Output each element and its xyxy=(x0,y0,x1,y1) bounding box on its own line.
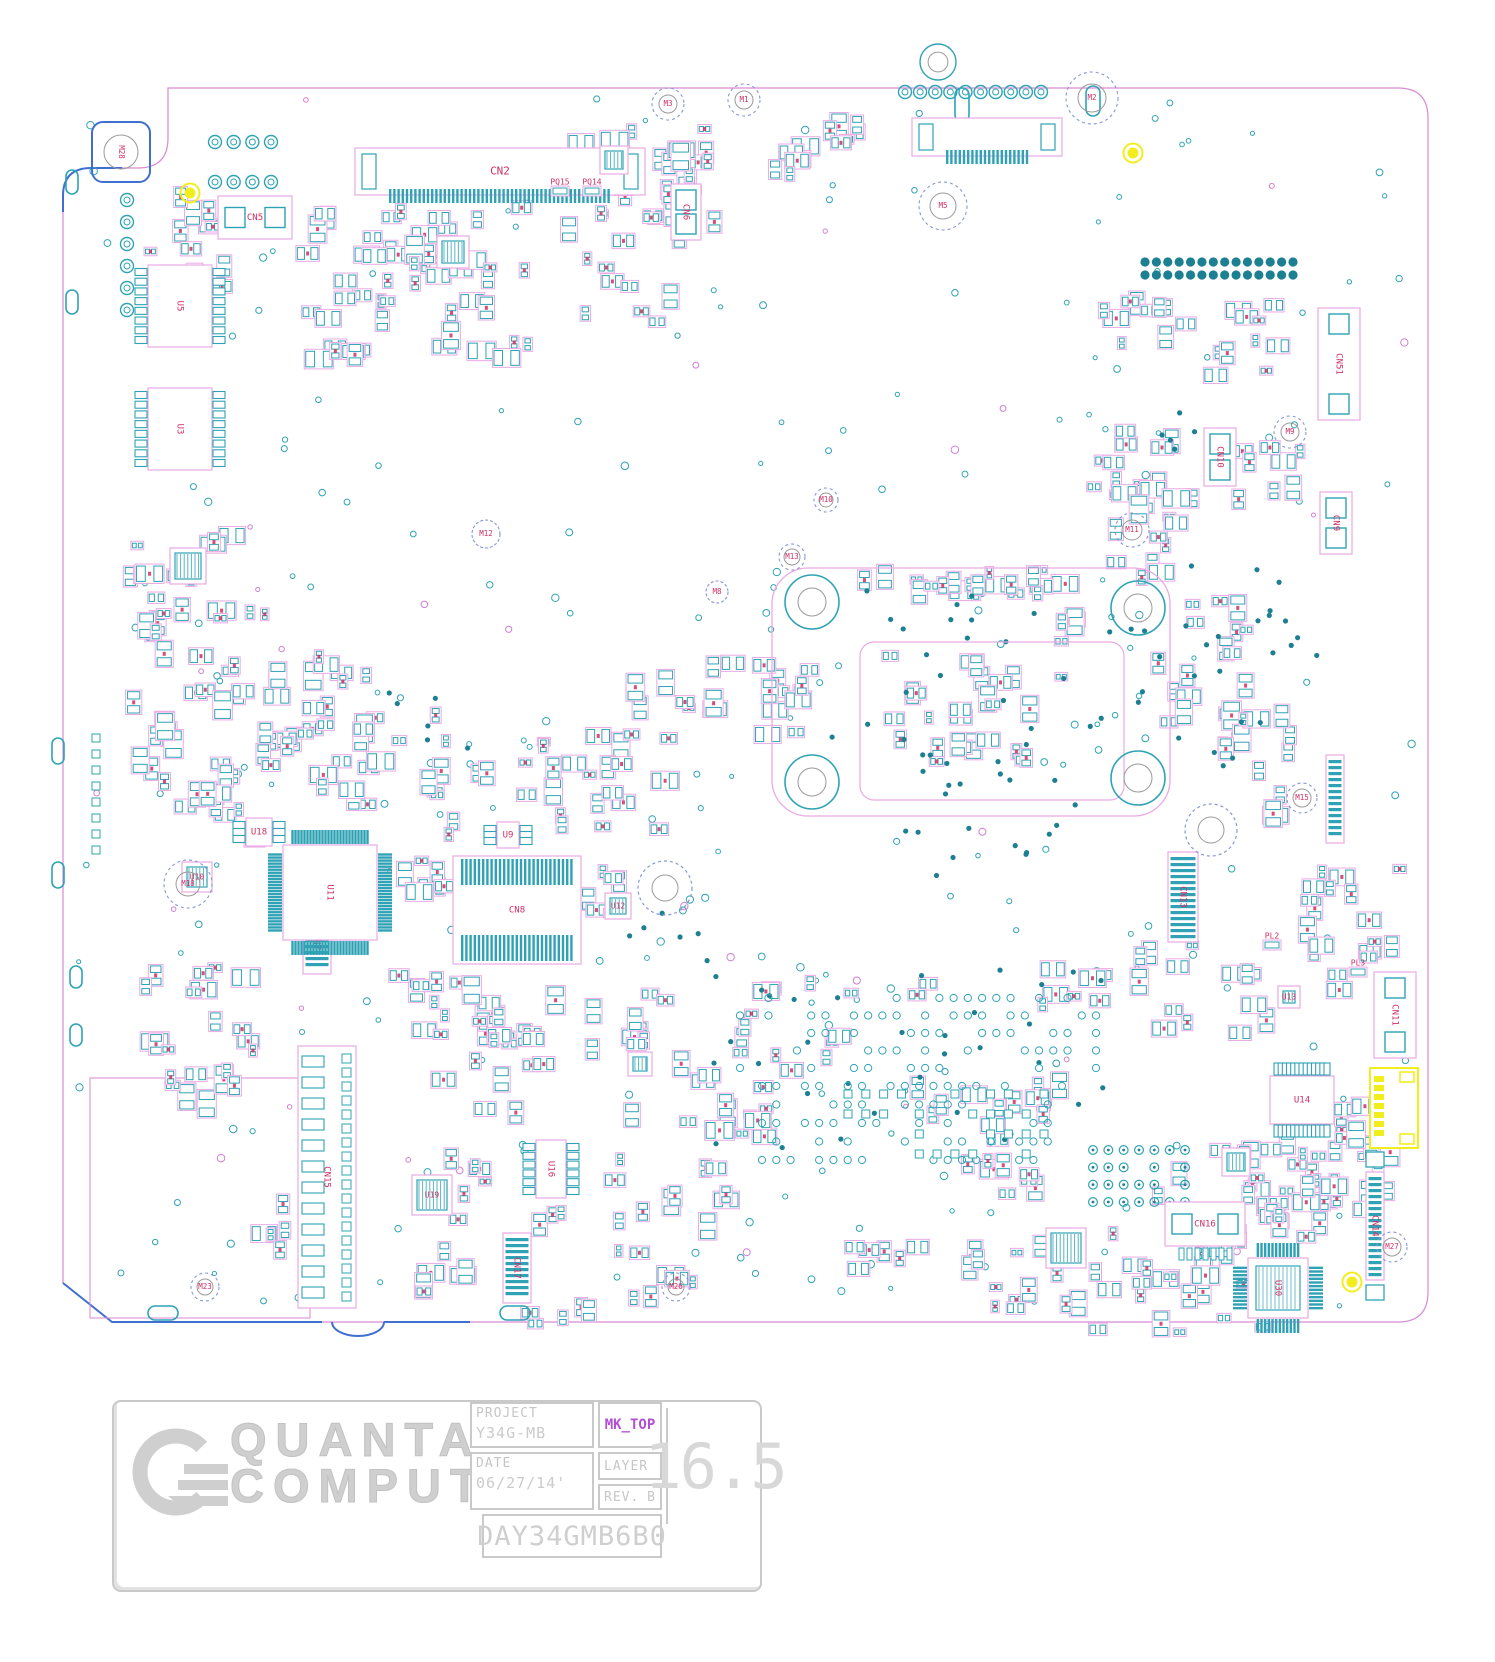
rev-label: REV. xyxy=(604,1490,639,1505)
svg-text:M8: M8 xyxy=(712,587,722,596)
svg-text:PQ15: PQ15 xyxy=(550,178,569,187)
svg-text:M15: M15 xyxy=(1295,793,1309,802)
connector-CN17: CN17 xyxy=(503,1233,531,1303)
connector-CN15: CN15 xyxy=(298,1046,356,1308)
scale-value: 16.5 xyxy=(666,1408,762,1524)
connector-CN14: CN14 xyxy=(1366,1152,1384,1300)
connector-CN11: CN11 xyxy=(1374,972,1416,1058)
date-cell: DATE 06/27/14' xyxy=(470,1452,594,1510)
connector-CN51: CN51 xyxy=(1318,308,1360,420)
mounting-hole-M1: M1 xyxy=(728,84,760,116)
ic-U9: U9 xyxy=(484,822,532,848)
connector-CN8: CN8 xyxy=(453,856,581,964)
boardview-canvas: CN2CN5CN6CN51CN10CN9CN8CN7CN15CN13CN11CN… xyxy=(0,0,1495,1662)
date-value: 06/27/14' xyxy=(476,1474,588,1492)
svg-text:CN2: CN2 xyxy=(490,165,510,178)
mounting-hole-M9: M9 xyxy=(1274,416,1306,448)
svg-text:U16: U16 xyxy=(546,1161,556,1177)
svg-text:CN14: CN14 xyxy=(1370,1215,1380,1237)
svg-text:M23: M23 xyxy=(198,1282,212,1291)
ic-unlabeled xyxy=(628,1052,652,1076)
svg-text:U13: U13 xyxy=(1282,993,1297,1002)
date-label: DATE xyxy=(476,1456,588,1471)
ic-U19: U19 xyxy=(412,1175,452,1215)
svg-text:M26: M26 xyxy=(669,1282,683,1291)
svg-text:U12: U12 xyxy=(611,902,626,911)
svg-text:U19: U19 xyxy=(425,1191,440,1200)
ic-unlabeled xyxy=(600,146,628,174)
mounting-hole-M3: M3 xyxy=(652,88,684,120)
mounting-hole xyxy=(1185,804,1237,856)
svg-text:CN10: CN10 xyxy=(1215,446,1225,468)
svg-text:U14: U14 xyxy=(1294,1096,1310,1106)
svg-text:M2: M2 xyxy=(1087,93,1096,102)
quanta-logo-icon xyxy=(128,1420,228,1540)
mounting-hole-M23: M23 xyxy=(191,1273,219,1301)
svg-text:PQ14: PQ14 xyxy=(582,178,601,187)
ic-U12: U12 xyxy=(605,893,631,919)
svg-text:M28: M28 xyxy=(117,145,126,159)
ic-unlabeled xyxy=(1222,1148,1250,1176)
svg-text:M10: M10 xyxy=(819,495,833,504)
ic-unlabeled xyxy=(170,548,206,584)
svg-text:CN17: CN17 xyxy=(512,1257,522,1279)
svg-text:PL3: PL3 xyxy=(1351,959,1366,968)
connector-unlabeled xyxy=(1326,755,1344,843)
svg-text:CN13: CN13 xyxy=(1178,886,1188,908)
svg-text:CN51: CN51 xyxy=(1334,353,1344,375)
ic-U16: U16 xyxy=(523,1140,579,1198)
mounting-hole-M28: M28 xyxy=(92,122,150,182)
svg-text:CN6: CN6 xyxy=(681,204,691,220)
svg-text:M3: M3 xyxy=(663,99,672,108)
ic-unlabeled xyxy=(437,236,469,268)
svg-text:CN8: CN8 xyxy=(509,906,525,916)
mounting-hole-M15: M15 xyxy=(1287,783,1317,813)
svg-text:U18: U18 xyxy=(251,828,267,838)
svg-text:U30: U30 xyxy=(1273,1280,1283,1296)
svg-text:CN16: CN16 xyxy=(1194,1220,1216,1230)
project-label: PROJECT xyxy=(476,1406,588,1421)
svg-text:M9: M9 xyxy=(1285,427,1294,436)
mounting-hole-M5: M5 xyxy=(919,182,967,230)
mounting-hole-M13: M13 xyxy=(779,544,805,570)
ic-U3: U3 xyxy=(135,388,225,470)
company-name-line1: QUANTA xyxy=(230,1416,482,1463)
connector-CN6: CN6 xyxy=(671,184,701,240)
svg-text:CN11: CN11 xyxy=(1390,1004,1400,1026)
ic-U5: U5 xyxy=(135,265,225,347)
project-value: Y34G-MB xyxy=(476,1424,588,1442)
svg-text:CN9: CN9 xyxy=(1331,515,1341,531)
connector-CN9: CN9 xyxy=(1320,492,1352,554)
mounting-hole-M12: M12 xyxy=(472,520,500,548)
cpu-bracket-area xyxy=(772,568,1170,816)
svg-text:PL2: PL2 xyxy=(1265,932,1280,941)
svg-text:M27: M27 xyxy=(1385,1242,1399,1251)
svg-text:M1: M1 xyxy=(739,95,748,104)
project-cell: PROJECT Y34G-MB xyxy=(470,1402,594,1448)
svg-text:U9: U9 xyxy=(503,831,514,841)
svg-text:CN15: CN15 xyxy=(322,1166,332,1188)
svg-text:M18: M18 xyxy=(181,879,195,888)
connector-CN10: CN10 xyxy=(1204,428,1236,486)
svg-text:CN5: CN5 xyxy=(247,213,263,223)
connector-unlabeled xyxy=(1370,1068,1418,1148)
ic-U14: U14 xyxy=(1270,1063,1334,1137)
connector-unlabeled xyxy=(912,118,1062,164)
connector-CN13: CN13 xyxy=(1168,852,1198,942)
mounting-hole-M10: M10 xyxy=(814,488,838,512)
svg-text:U5: U5 xyxy=(175,301,185,312)
svg-text:M12: M12 xyxy=(479,529,493,538)
connector-CN5: CN5 xyxy=(218,196,292,239)
svg-text:M11: M11 xyxy=(1125,525,1139,534)
ic-U11: U11 xyxy=(268,830,392,955)
svg-text:M5: M5 xyxy=(938,201,947,210)
board-number: DAY34GMB6B0 xyxy=(482,1514,662,1558)
svg-text:U3: U3 xyxy=(175,424,185,435)
ic-unlabeled xyxy=(1046,1228,1086,1268)
mounting-hole-M8: M8 xyxy=(706,581,728,603)
ic-U13: U13 xyxy=(1278,986,1300,1008)
ic-U18: U18 xyxy=(233,818,285,846)
svg-text:M13: M13 xyxy=(785,552,799,561)
title-block: QUANTA COMPUTER PROJECT Y34G-MB MK_TOP D… xyxy=(112,1400,762,1592)
svg-text:U11: U11 xyxy=(325,884,335,900)
